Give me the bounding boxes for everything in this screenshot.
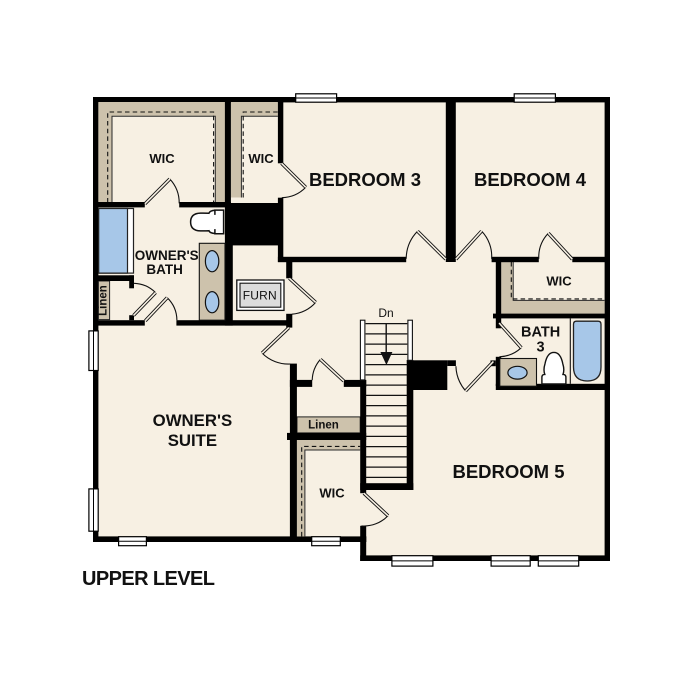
svg-text:Linen: Linen	[308, 420, 339, 432]
svg-text:SUITE: SUITE	[168, 431, 217, 450]
svg-text:FURN: FURN	[243, 288, 277, 302]
svg-text:WIC: WIC	[149, 151, 175, 166]
svg-text:Linen: Linen	[97, 285, 109, 316]
svg-text:UPPER LEVEL: UPPER LEVEL	[82, 568, 215, 590]
svg-text:WIC: WIC	[248, 151, 274, 166]
svg-text:Dn: Dn	[378, 306, 393, 320]
svg-text:BEDROOM 3: BEDROOM 3	[309, 169, 421, 190]
svg-text:WIC: WIC	[546, 274, 572, 289]
svg-text:3: 3	[537, 340, 545, 356]
svg-text:BEDROOM 5: BEDROOM 5	[452, 461, 564, 482]
svg-text:BEDROOM 4: BEDROOM 4	[474, 169, 587, 190]
svg-text:BATH: BATH	[146, 262, 183, 277]
svg-text:OWNER'S: OWNER'S	[135, 248, 199, 263]
svg-text:OWNER'S: OWNER'S	[153, 411, 233, 430]
svg-text:WIC: WIC	[319, 486, 345, 501]
svg-text:BATH: BATH	[521, 325, 560, 341]
